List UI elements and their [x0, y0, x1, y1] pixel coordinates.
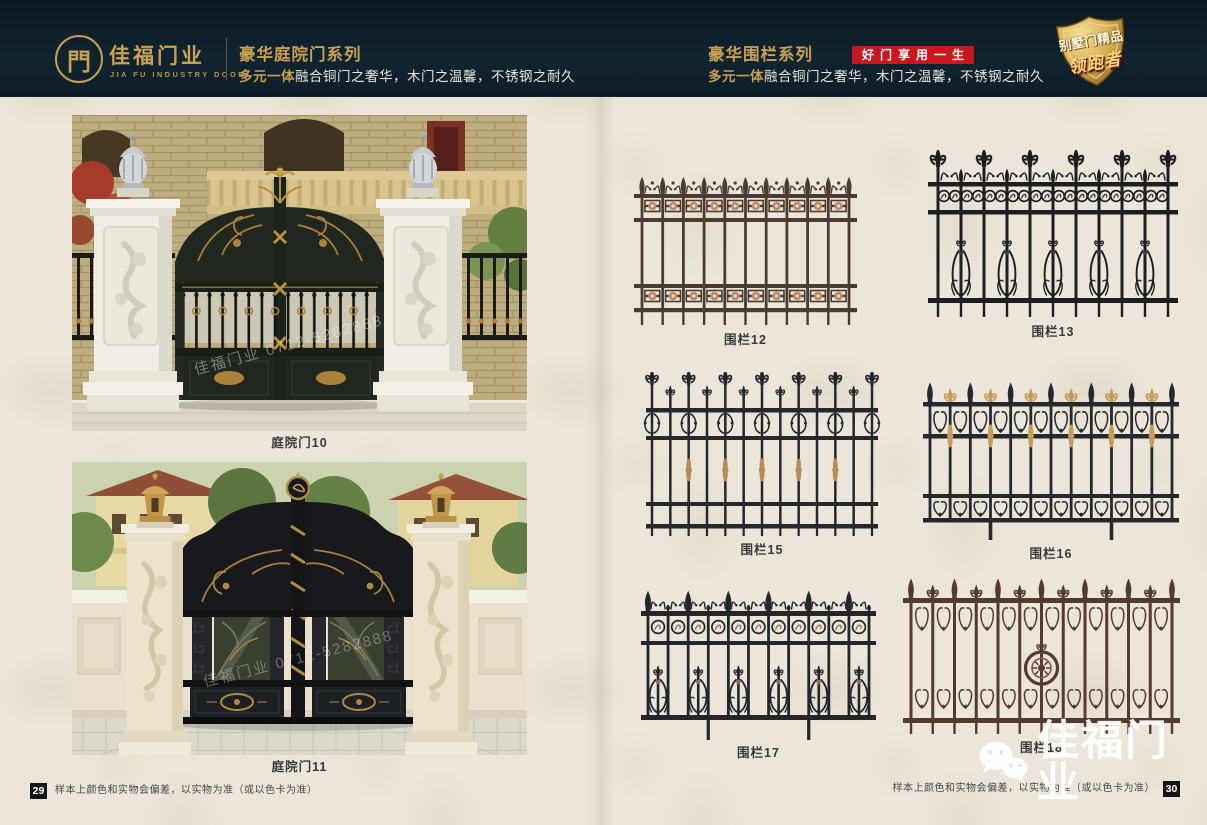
page-number-left: 29 — [30, 783, 47, 799]
slogan-badge: 好门享用一生 — [852, 46, 974, 64]
brand-watermark-text: 佳福门业 — [1037, 720, 1207, 804]
series-subtitle-right: 多元一体融合铜门之奢华，木门之温馨，不锈钢之耐久 — [708, 65, 1044, 85]
fence-caption-15: 围栏15 — [741, 544, 784, 557]
stone-pillar-left — [83, 199, 183, 411]
gate-product-10: 佳福门业 0712-5282888 庭院门10 — [72, 115, 527, 453]
fence-illustration-16 — [918, 372, 1184, 542]
stone-pillar-left — [119, 524, 191, 755]
series-subtitle-left-em: 多元一体 — [239, 69, 295, 84]
gate-caption-11: 庭院门11 — [272, 761, 328, 774]
fence-illustration-15 — [642, 372, 882, 538]
page-gutter — [588, 97, 614, 825]
fence-product-16: 围栏16 — [918, 372, 1184, 561]
footer-left: 29 样本上颜色和实物会偏差，以实物为准（或以色卡为准） — [30, 783, 318, 799]
series-subtitle-left: 多元一体融合铜门之奢华，木门之温馨，不锈钢之耐久 — [239, 65, 575, 85]
header-divider — [226, 38, 227, 80]
fence-product-12: 围栏12 — [628, 168, 863, 347]
fence-illustration-18 — [898, 570, 1185, 736]
disclaimer-left: 样本上颜色和实物会偏差，以实物为准（或以色卡为准） — [55, 786, 318, 796]
logo-door-icon: 門 — [55, 35, 103, 83]
brand-name-cn: 佳福门业 — [109, 40, 205, 70]
fence-caption-12: 围栏12 — [724, 334, 767, 347]
catalog-spread: 門 佳福门业 JIA FU INDUSTRY DOOR 豪华庭院门系列 多元一体… — [0, 0, 1207, 825]
header-band: 門 佳福门业 JIA FU INDUSTRY DOOR 豪华庭院门系列 多元一体… — [0, 0, 1207, 97]
fence-product-15: 围栏15 — [642, 372, 882, 557]
gate-photo-10-illustration: 佳福门业 0712-5282888 — [72, 115, 527, 431]
premium-badge: 别墅门精品 领跑者 — [1045, 5, 1140, 97]
logo-glyph: 門 — [67, 42, 91, 77]
stone-pillar-right — [405, 524, 477, 755]
gate-photo-11-illustration: 佳福门业 0712-5282888 — [72, 462, 527, 755]
fence-caption-16: 围栏16 — [1030, 548, 1073, 561]
wechat-icon — [975, 737, 1031, 787]
series-title-right: 豪华围栏系列 — [708, 41, 813, 65]
fence-illustration-13 — [922, 150, 1184, 320]
brand-watermark: 佳福门业 — [975, 720, 1207, 804]
series-title-left: 豪华庭院门系列 — [239, 41, 362, 65]
series-subtitle-left-rest: 融合铜门之奢华，木门之温馨，不锈钢之耐久 — [295, 69, 575, 84]
gate-caption-10: 庭院门10 — [271, 437, 327, 450]
fence-illustration-17 — [637, 575, 880, 741]
series-subtitle-right-rest: 融合铜门之奢华，木门之温馨，不锈钢之耐久 — [764, 69, 1044, 84]
fence-product-13: 围栏13 — [922, 150, 1184, 339]
fence-product-17: 围栏17 — [637, 575, 880, 760]
gate-product-11: 佳福门业 0712-5282888 庭院门11 — [72, 462, 527, 777]
fence-caption-13: 围栏13 — [1032, 326, 1075, 339]
stone-pillar-right — [373, 199, 473, 411]
fence-caption-17: 围栏17 — [737, 747, 780, 760]
fence-illustration-12 — [628, 168, 863, 328]
series-subtitle-right-em: 多元一体 — [708, 69, 764, 84]
